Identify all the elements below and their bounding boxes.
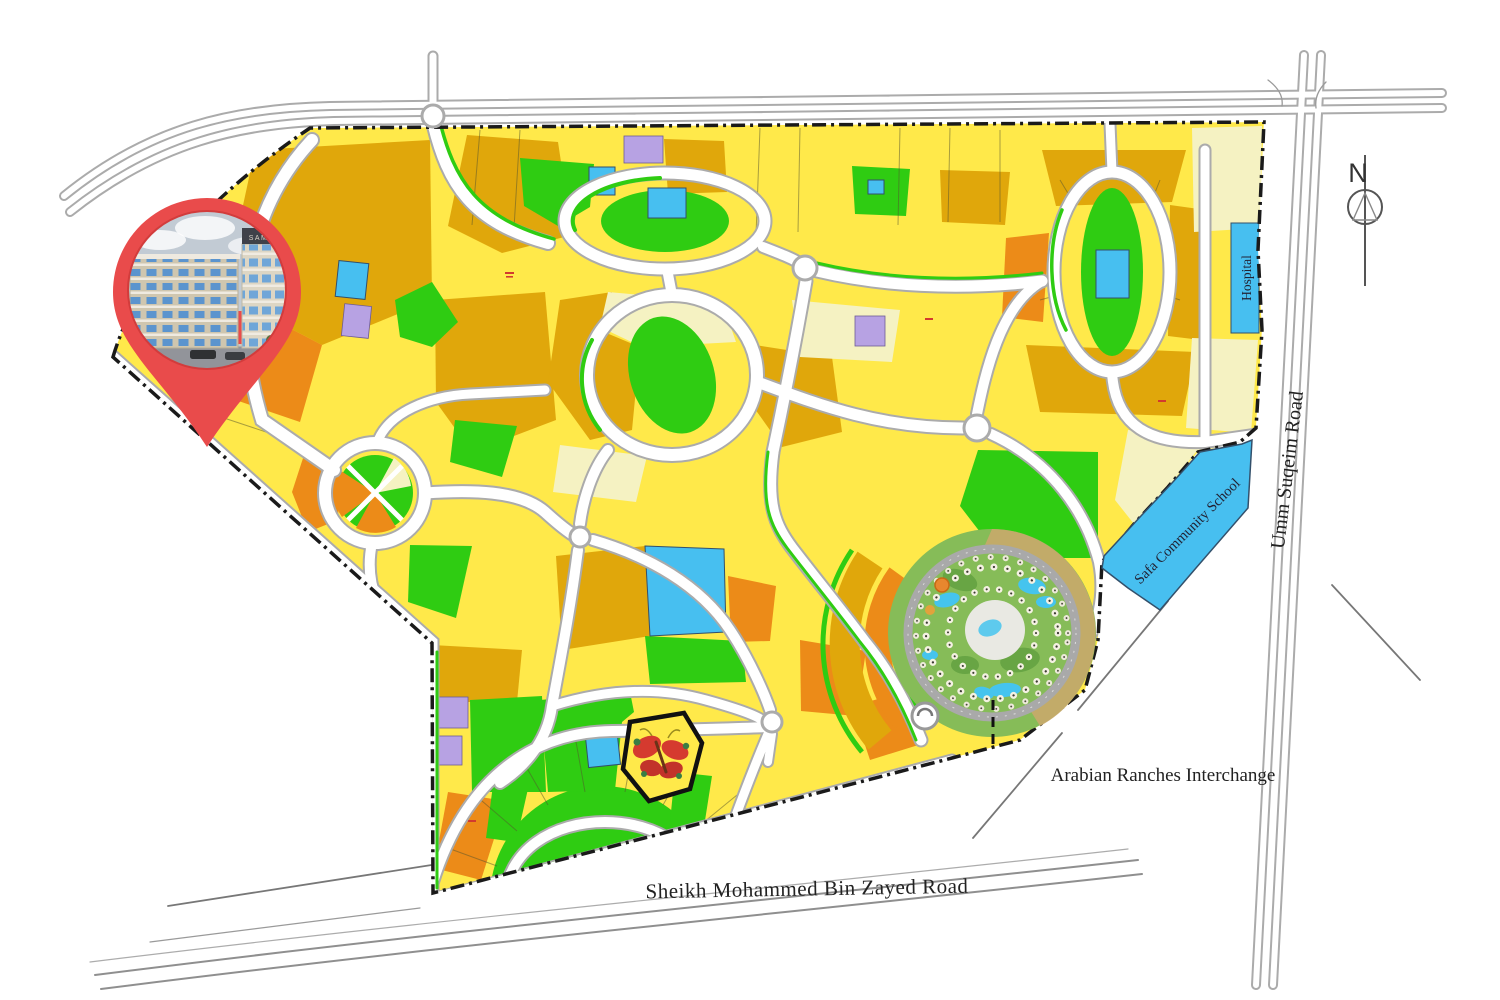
north-arrow-icon: N xyxy=(1348,155,1382,286)
roundabout xyxy=(422,105,444,127)
smbz-road-lines xyxy=(90,849,1142,989)
town-center-render xyxy=(888,529,1096,748)
masterplan-map: N SAMANA Sheikh Mohammed Bin Zayed Road … xyxy=(0,0,1500,1000)
hospital-label: Hospital xyxy=(1239,255,1255,301)
north-label: N xyxy=(1348,158,1368,188)
interchange-label: Arabian Ranches Interchange xyxy=(1051,765,1276,787)
